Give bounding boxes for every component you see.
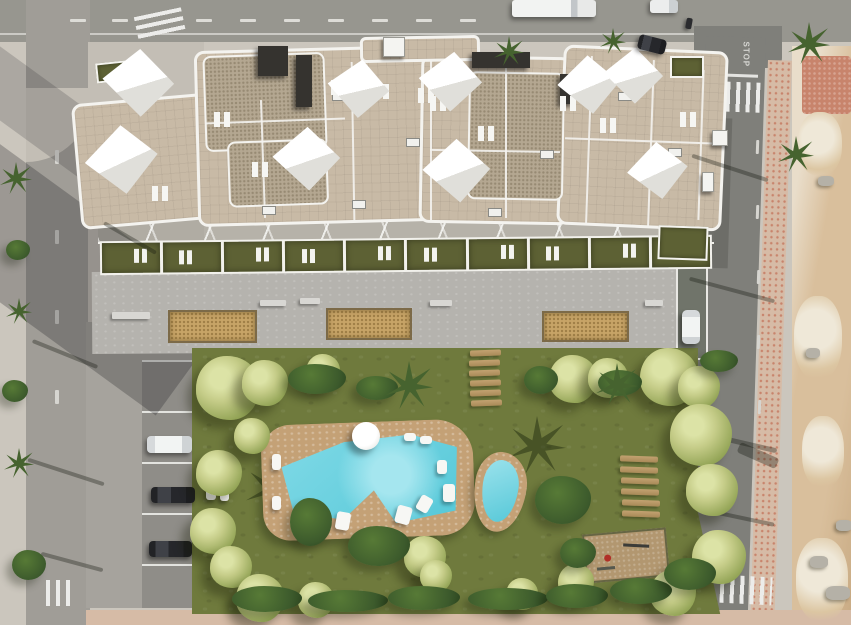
stop-road-marking: STOP [742, 42, 751, 72]
concrete-deck [92, 268, 681, 354]
private-terrace-garden [591, 237, 649, 268]
private-terrace-garden [102, 243, 160, 274]
red-tiled-plaza [802, 56, 851, 114]
play-equipment [623, 543, 649, 547]
private-terrace-row [100, 235, 712, 275]
private-terrace-garden [346, 240, 404, 271]
private-terrace-garden [163, 242, 221, 273]
gravel-roof [227, 138, 329, 207]
parasol [352, 422, 380, 450]
gravel-roof [202, 52, 327, 152]
play-equipment [604, 554, 612, 562]
gravel-roof [467, 71, 565, 201]
private-terrace-garden [407, 239, 465, 270]
building-roof-edge [360, 35, 480, 63]
play-equipment [597, 566, 615, 571]
aerial-complex-render: STOP [0, 0, 851, 625]
road-edge-line [0, 33, 700, 35]
building-block-right [556, 44, 729, 231]
playground [582, 527, 670, 583]
private-terrace-garden [529, 238, 587, 269]
driveway-ramp [676, 266, 708, 360]
private-terrace-garden [468, 239, 526, 270]
private-terrace-garden [652, 237, 710, 268]
sandy-vacant-lot [792, 46, 851, 625]
private-terrace-garden [285, 241, 343, 272]
private-terrace-garden [224, 241, 282, 272]
